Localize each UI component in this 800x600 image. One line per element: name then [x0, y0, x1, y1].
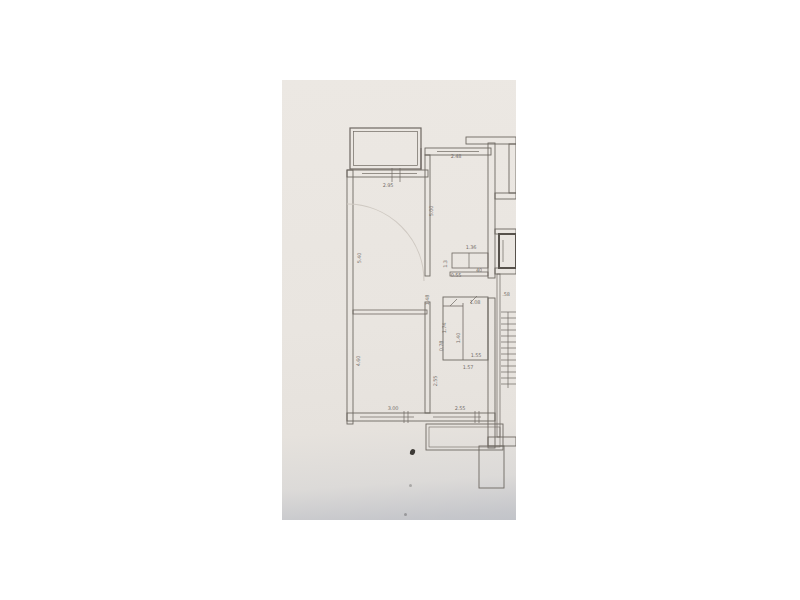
stair-steps [501, 312, 516, 384]
dimension-label: 2.48 [451, 153, 461, 159]
dimension-label: 2.55 [455, 405, 465, 411]
entrance-porch [479, 446, 504, 488]
dimension-label: 0.78 [438, 341, 444, 351]
dimension-label: 1.08 [470, 299, 480, 305]
screenshot-stage: 2.955.404.603.002.485.001.361.30.55401.4… [0, 0, 800, 600]
door-swing-arc [347, 204, 424, 281]
exterior-wall-left [347, 170, 353, 424]
dimension-label: 0.55 [451, 272, 461, 278]
dimension-labels: 2.955.404.603.002.485.001.361.30.55401.4… [355, 153, 510, 411]
dimension-label: 5.40 [356, 253, 362, 263]
dimension-label: 1.48 [424, 295, 430, 305]
dimension-label: .58 [502, 291, 509, 297]
dimension-label: 4.60 [355, 356, 361, 366]
dimension-label: 1.3 [442, 260, 448, 267]
small-dark-room [499, 234, 516, 268]
closet [452, 253, 488, 268]
door-leaf [450, 299, 457, 306]
stairwell [479, 268, 516, 488]
dimension-label: 1.57 [463, 364, 473, 370]
exterior-wall-bottom [347, 411, 495, 423]
dimension-label: 1.74 [441, 323, 447, 333]
photo-speck [409, 484, 412, 487]
corridor-wall [488, 143, 495, 448]
bathroom-block [443, 296, 488, 360]
dimension-label: 1.36 [466, 244, 476, 250]
dimension-label: 1.40 [455, 333, 461, 343]
room-divider-wall [353, 310, 427, 314]
dimension-label: 3.00 [388, 405, 398, 411]
room-top-left [347, 148, 428, 314]
floorplan-drawing: 2.955.404.603.002.485.001.361.30.55401.4… [282, 80, 516, 520]
dimension-label: 40 [476, 267, 482, 273]
dimension-label: 1.55 [471, 352, 481, 358]
floorplan-photo: 2.955.404.603.002.485.001.361.30.55401.4… [282, 80, 516, 520]
dimension-label: 2.55 [432, 376, 438, 386]
dimension-label: 5.00 [428, 206, 434, 216]
balcony-top [350, 128, 421, 169]
photo-speck [404, 513, 407, 516]
dimension-label: 2.95 [383, 182, 393, 188]
room-top-middle [425, 148, 491, 413]
